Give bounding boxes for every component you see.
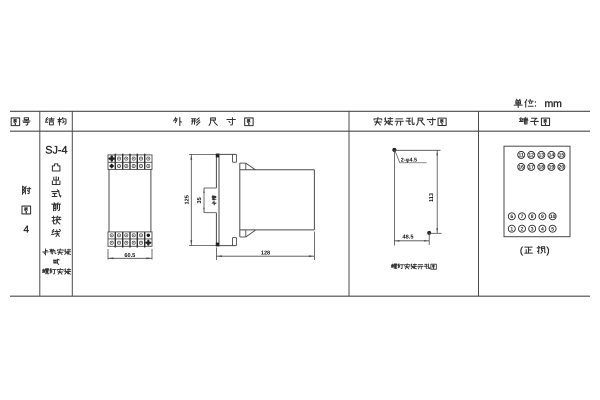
svg-text:20: 20 bbox=[559, 165, 565, 171]
svg-text:16: 16 bbox=[518, 165, 524, 171]
svg-text:SJ-4: SJ-4 bbox=[45, 144, 67, 156]
svg-text:12: 12 bbox=[528, 153, 534, 159]
svg-text:3: 3 bbox=[531, 227, 534, 233]
svg-text:): ) bbox=[546, 246, 549, 257]
svg-text:17: 17 bbox=[528, 165, 534, 171]
svg-text:4: 4 bbox=[541, 227, 544, 233]
svg-text:mm: mm bbox=[544, 98, 562, 110]
svg-text:13: 13 bbox=[539, 153, 545, 159]
svg-text:8: 8 bbox=[531, 214, 534, 220]
svg-text:1: 1 bbox=[510, 227, 513, 233]
svg-text:18: 18 bbox=[539, 165, 545, 171]
svg-text:2-φ4.5: 2-φ4.5 bbox=[401, 158, 417, 164]
svg-text:5: 5 bbox=[551, 227, 554, 233]
svg-text:4: 4 bbox=[24, 225, 30, 236]
svg-text::: : bbox=[534, 99, 537, 110]
svg-text:19: 19 bbox=[549, 165, 555, 171]
svg-text:10: 10 bbox=[550, 214, 556, 220]
svg-text:11: 11 bbox=[519, 153, 525, 159]
svg-text:48.5: 48.5 bbox=[403, 235, 414, 241]
svg-text:60.5: 60.5 bbox=[124, 253, 135, 259]
svg-text:14: 14 bbox=[549, 153, 555, 159]
svg-text:7: 7 bbox=[521, 214, 524, 220]
svg-text:9: 9 bbox=[541, 214, 544, 220]
svg-text:2: 2 bbox=[521, 227, 524, 233]
svg-text:128: 128 bbox=[261, 251, 270, 257]
svg-text:113: 113 bbox=[429, 193, 435, 202]
svg-text:6: 6 bbox=[510, 214, 513, 220]
svg-text:35: 35 bbox=[197, 197, 203, 203]
svg-text:15: 15 bbox=[559, 153, 565, 159]
svg-text:125: 125 bbox=[184, 195, 190, 204]
